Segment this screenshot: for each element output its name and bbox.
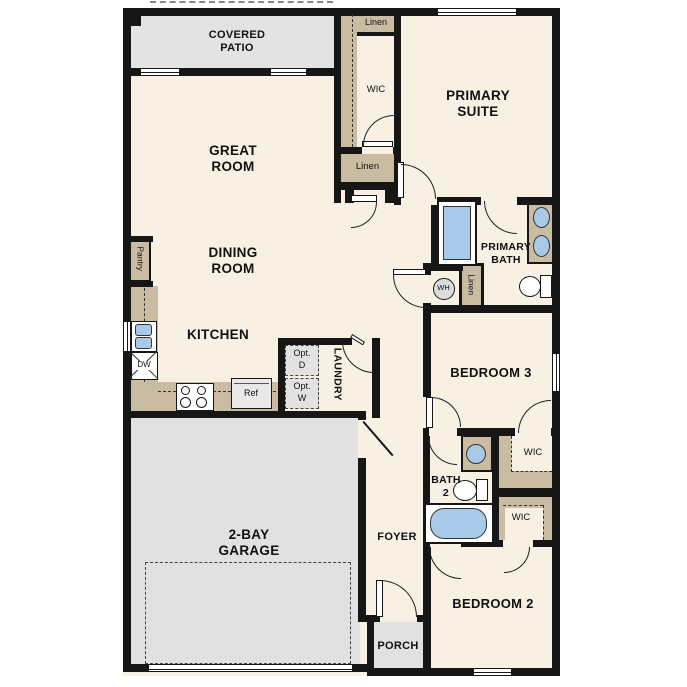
kitchen-window <box>123 321 131 352</box>
wall-garage-top <box>123 411 366 418</box>
dining-room-label: DININGROOM <box>173 245 293 277</box>
kitchen-label: KITCHEN <box>158 327 278 343</box>
bedroom2-window <box>473 668 512 676</box>
wic-bed3-rod-line <box>511 436 512 472</box>
floor-plan: DW Ref WH Opt. D Opt. W COVEREDPATIO GRE… <box>0 0 687 687</box>
wic-bed3-shelf-line <box>511 471 552 472</box>
wic-bed2-label: WIC <box>501 513 541 523</box>
bath2-toilet-tank <box>476 479 488 501</box>
opening-wic-bed2 <box>503 540 533 547</box>
primary-suite-label: PRIMARYSUITE <box>418 88 538 120</box>
wall-stub-right <box>385 190 396 203</box>
patio-post <box>125 10 141 26</box>
primary-sink-1 <box>533 207 550 228</box>
garage-overhead-door <box>148 664 353 672</box>
opt-d-label-1: Opt. <box>286 348 318 360</box>
wall-wic-left <box>334 12 341 203</box>
garage-label: 2-BAYGARAGE <box>189 527 309 559</box>
opening-wic-primary <box>362 147 393 154</box>
opt-w-label-2: W <box>286 393 318 405</box>
primary-suite-window <box>437 8 517 16</box>
refrigerator: Ref <box>231 378 272 409</box>
linen-hall-label: Linen <box>341 162 394 172</box>
wall-bedroom3-left <box>423 313 431 397</box>
covered-patio-label: COVEREDPATIO <box>182 29 292 55</box>
wall-pantry-bottom <box>123 281 153 287</box>
opt-d-label-2: D <box>286 360 318 372</box>
wic-bed3-label: WIC <box>513 448 553 458</box>
dishwasher: DW <box>131 352 158 380</box>
wall-bedroom2-left <box>423 547 431 676</box>
opening-bath2 <box>429 428 457 436</box>
wic-primary-label: WIC <box>356 85 396 95</box>
wall-bedroom3-top <box>423 305 560 313</box>
linen-bath-label: Linen <box>466 265 475 305</box>
bath2-sink <box>466 444 486 464</box>
wic-bed2-shelf-line <box>503 505 543 506</box>
patio-roof-dashed-line <box>150 1 333 3</box>
great-room-label: GREATROOM <box>173 143 293 175</box>
water-heater: WH <box>433 278 455 300</box>
optional-dryer: Opt. D <box>285 345 319 376</box>
wall-linen-hall-bottom <box>336 182 398 190</box>
bath2-tub <box>424 503 494 544</box>
porch-label: PORCH <box>372 640 424 653</box>
wic-primary-rod-line <box>352 14 353 147</box>
linen-top-label: Linen <box>357 18 395 28</box>
garage-parking-dashed <box>145 562 351 664</box>
bedroom3-window <box>552 353 560 392</box>
wh-label: WH <box>434 284 453 292</box>
primary-bath-label: PRIMARYBATH <box>466 241 546 266</box>
opt-w-label-1: Opt. <box>286 381 318 393</box>
wic-bed3-shelf-bottom <box>511 471 552 489</box>
bath2-label: BATH2 <box>427 474 465 499</box>
stove <box>176 383 214 411</box>
wall-porch-bottom <box>367 668 431 676</box>
wic-bed2-rod-line <box>543 505 544 540</box>
ref-label: Ref <box>232 389 270 399</box>
dw-label: DW <box>132 361 156 370</box>
foyer-label: FOYER <box>367 531 427 544</box>
wall-laundry-left <box>278 338 285 418</box>
primary-toilet-tank <box>540 275 552 298</box>
optional-washer: Opt. W <box>285 378 319 409</box>
wall-wic-divider <box>497 488 560 497</box>
wall-outer-right <box>552 8 560 676</box>
bedroom3-label: BEDROOM 3 <box>431 365 551 381</box>
kitchen-sink <box>131 321 157 352</box>
hall-closet-door-leaf <box>351 195 377 202</box>
pantry-label: Pantry <box>135 239 144 279</box>
laundry-label: LAUNDRY <box>331 344 344 404</box>
wic-bed3-shelf-left <box>499 436 511 488</box>
great-room-slider-door <box>140 68 180 76</box>
great-room-window <box>270 68 307 76</box>
wic-hanging-strip <box>341 14 357 147</box>
bedroom2-label: BEDROOM 2 <box>433 596 553 612</box>
primary-toilet-bowl <box>519 276 541 297</box>
